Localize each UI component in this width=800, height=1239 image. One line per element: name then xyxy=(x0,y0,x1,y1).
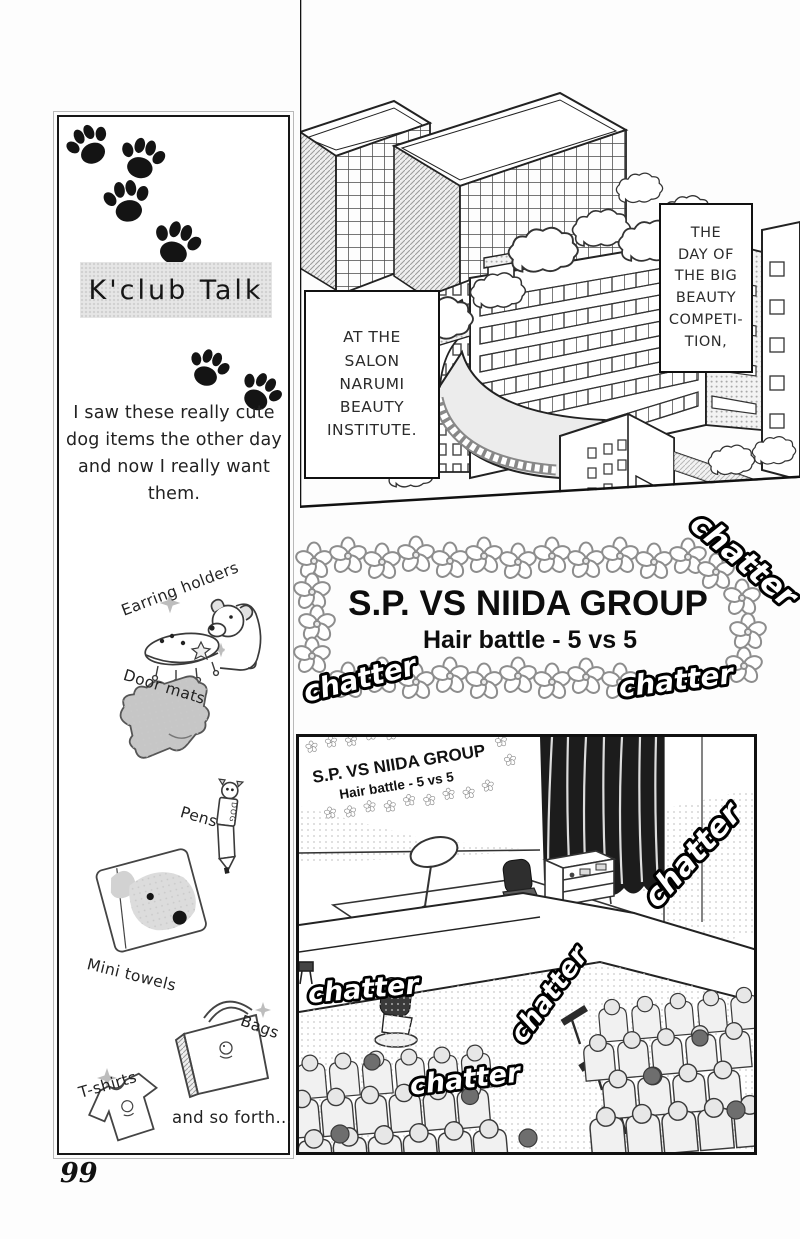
stage-scene: S.P. VS NIIDA GROUP Hair battle - 5 vs 5… xyxy=(299,737,754,1152)
mini-towel-icon xyxy=(95,848,208,953)
earring-holder-dog-icon xyxy=(143,600,260,685)
manga-page: { "page": { "number": "99" }, "sidebar":… xyxy=(0,0,800,1239)
stage-sign: S.P. VS NIIDA GROUP Hair battle - 5 vs 5 xyxy=(304,734,521,824)
bottom-panel: S.P. VS NIIDA GROUP Hair battle - 5 vs 5… xyxy=(296,734,757,1155)
panel-bottom-border xyxy=(300,477,800,507)
speech-text-competition: THE DAY OF THE BIG BEAUTY COMPETI- TION, xyxy=(669,223,743,354)
sidebar-title-band: K'club Talk xyxy=(80,262,272,318)
banner: S.P. VS NIIDA GROUP Hair battle - 5 vs 5… xyxy=(297,505,800,715)
sidebar-title: K'club Talk xyxy=(88,275,263,306)
speech-box-salon: AT THE SALON NARUMI BEAUTY INSTITUTE. xyxy=(304,290,440,479)
banner-subtitle: Hair battle - 5 vs 5 xyxy=(423,626,637,654)
page-number: 99 xyxy=(60,1158,98,1189)
sidebar-intro-text: I saw these really cute dog items the ot… xyxy=(62,400,286,509)
speech-box-competition: THE DAY OF THE BIG BEAUTY COMPETI- TION, xyxy=(659,203,753,373)
chatter-text: chatter xyxy=(617,657,737,704)
speech-text-salon: AT THE SALON NARUMI BEAUTY INSTITUTE. xyxy=(327,326,417,442)
sidebar-outro-text: and so forth... xyxy=(172,1108,292,1127)
banner-title: S.P. VS NIIDA GROUP xyxy=(348,584,708,623)
